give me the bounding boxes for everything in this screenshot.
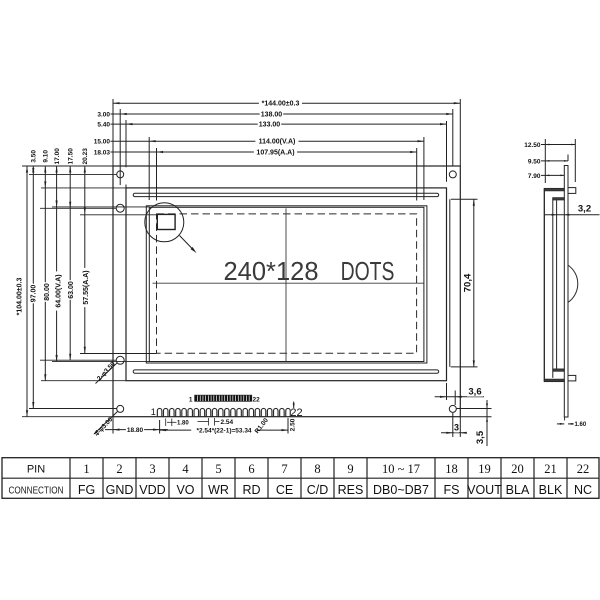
svg-text:FS: FS xyxy=(444,483,460,497)
svg-text:DB0~DB7: DB0~DB7 xyxy=(373,483,429,497)
svg-text:VOUT: VOUT xyxy=(467,483,502,497)
svg-text:107.95(A.A): 107.95(A.A) xyxy=(256,149,294,156)
svg-text:7.90: 7.90 xyxy=(528,173,541,180)
svg-text:RES: RES xyxy=(338,483,364,497)
svg-text:3: 3 xyxy=(149,462,155,476)
svg-text:*2.54*(22-1)=53.34: *2.54*(22-1)=53.34 xyxy=(196,428,251,435)
svg-text:6: 6 xyxy=(248,462,254,476)
svg-text:22: 22 xyxy=(290,407,302,419)
svg-text:GND: GND xyxy=(106,483,134,497)
svg-text:3: 3 xyxy=(454,423,459,433)
svg-text:22: 22 xyxy=(577,462,590,476)
svg-text:9: 9 xyxy=(347,462,353,476)
svg-text:17.00: 17.00 xyxy=(54,148,61,165)
svg-text:BLA: BLA xyxy=(506,483,530,497)
svg-text:1.80: 1.80 xyxy=(177,421,189,427)
svg-text:18.80: 18.80 xyxy=(127,427,144,434)
svg-text:15.00: 15.00 xyxy=(94,139,111,146)
svg-text:WR: WR xyxy=(208,483,229,497)
svg-text:VDD: VDD xyxy=(139,483,165,497)
svg-text:57.55(A.A): 57.55(A.A) xyxy=(83,270,90,304)
svg-text:2: 2 xyxy=(116,462,122,476)
svg-text:97.00: 97.00 xyxy=(30,285,37,303)
svg-text:VO: VO xyxy=(176,483,194,497)
svg-text:64.00(V.A): 64.00(V.A) xyxy=(56,274,63,307)
svg-text:BLK: BLK xyxy=(539,483,563,497)
svg-text:20.23: 20.23 xyxy=(82,148,89,165)
svg-text:63.00: 63.00 xyxy=(68,281,75,299)
svg-text:19: 19 xyxy=(478,462,491,476)
svg-text:1: 1 xyxy=(83,462,89,476)
svg-text:18.03: 18.03 xyxy=(94,149,111,156)
svg-text:*144.00±0.3: *144.00±0.3 xyxy=(262,101,300,108)
svg-text:PIN: PIN xyxy=(27,463,45,475)
svg-text:17.50: 17.50 xyxy=(67,148,74,165)
svg-text:4: 4 xyxy=(182,462,189,476)
svg-text:DOTS: DOTS xyxy=(341,257,395,285)
svg-text:240*128: 240*128 xyxy=(223,258,318,286)
svg-text:1: 1 xyxy=(189,396,193,403)
svg-text:9.50: 9.50 xyxy=(528,158,541,165)
svg-text:RD: RD xyxy=(242,483,260,497)
svg-text:5: 5 xyxy=(215,462,221,476)
svg-text:CONNECTION: CONNECTION xyxy=(8,485,63,496)
svg-text:138.00: 138.00 xyxy=(261,111,283,118)
svg-text:10 ~ 17: 10 ~ 17 xyxy=(382,462,420,476)
svg-text:21: 21 xyxy=(544,462,557,476)
svg-text:3.50: 3.50 xyxy=(31,150,38,163)
svg-text:2.50: 2.50 xyxy=(289,418,296,431)
svg-text:7: 7 xyxy=(281,462,287,476)
svg-text:8: 8 xyxy=(314,462,320,476)
svg-text:1: 1 xyxy=(151,407,156,417)
svg-text:20: 20 xyxy=(511,462,524,476)
svg-text:18: 18 xyxy=(445,462,458,476)
svg-text:3,6: 3,6 xyxy=(468,387,481,398)
svg-text:22: 22 xyxy=(253,396,261,403)
svg-text:80.00: 80.00 xyxy=(44,283,51,301)
svg-text:1.60: 1.60 xyxy=(575,422,587,428)
svg-text:2.54: 2.54 xyxy=(221,419,234,426)
svg-text:CE: CE xyxy=(276,483,293,497)
svg-text:3,2: 3,2 xyxy=(578,204,591,215)
svg-text:FG: FG xyxy=(78,483,95,497)
svg-text:9.10: 9.10 xyxy=(43,150,50,163)
svg-text:C/D: C/D xyxy=(307,483,329,497)
svg-text:133.00: 133.00 xyxy=(259,121,281,128)
svg-text:*104.00±0.3: *104.00±0.3 xyxy=(17,278,24,316)
svg-text:70,4: 70,4 xyxy=(463,273,474,292)
svg-text:3,5: 3,5 xyxy=(475,430,486,444)
svg-text:NC: NC xyxy=(574,483,592,497)
svg-text:3.00: 3.00 xyxy=(97,111,110,118)
svg-text:5.40: 5.40 xyxy=(97,121,110,128)
svg-text:12.50: 12.50 xyxy=(524,142,541,149)
svg-text:114.00(V.A): 114.00(V.A) xyxy=(259,139,296,146)
